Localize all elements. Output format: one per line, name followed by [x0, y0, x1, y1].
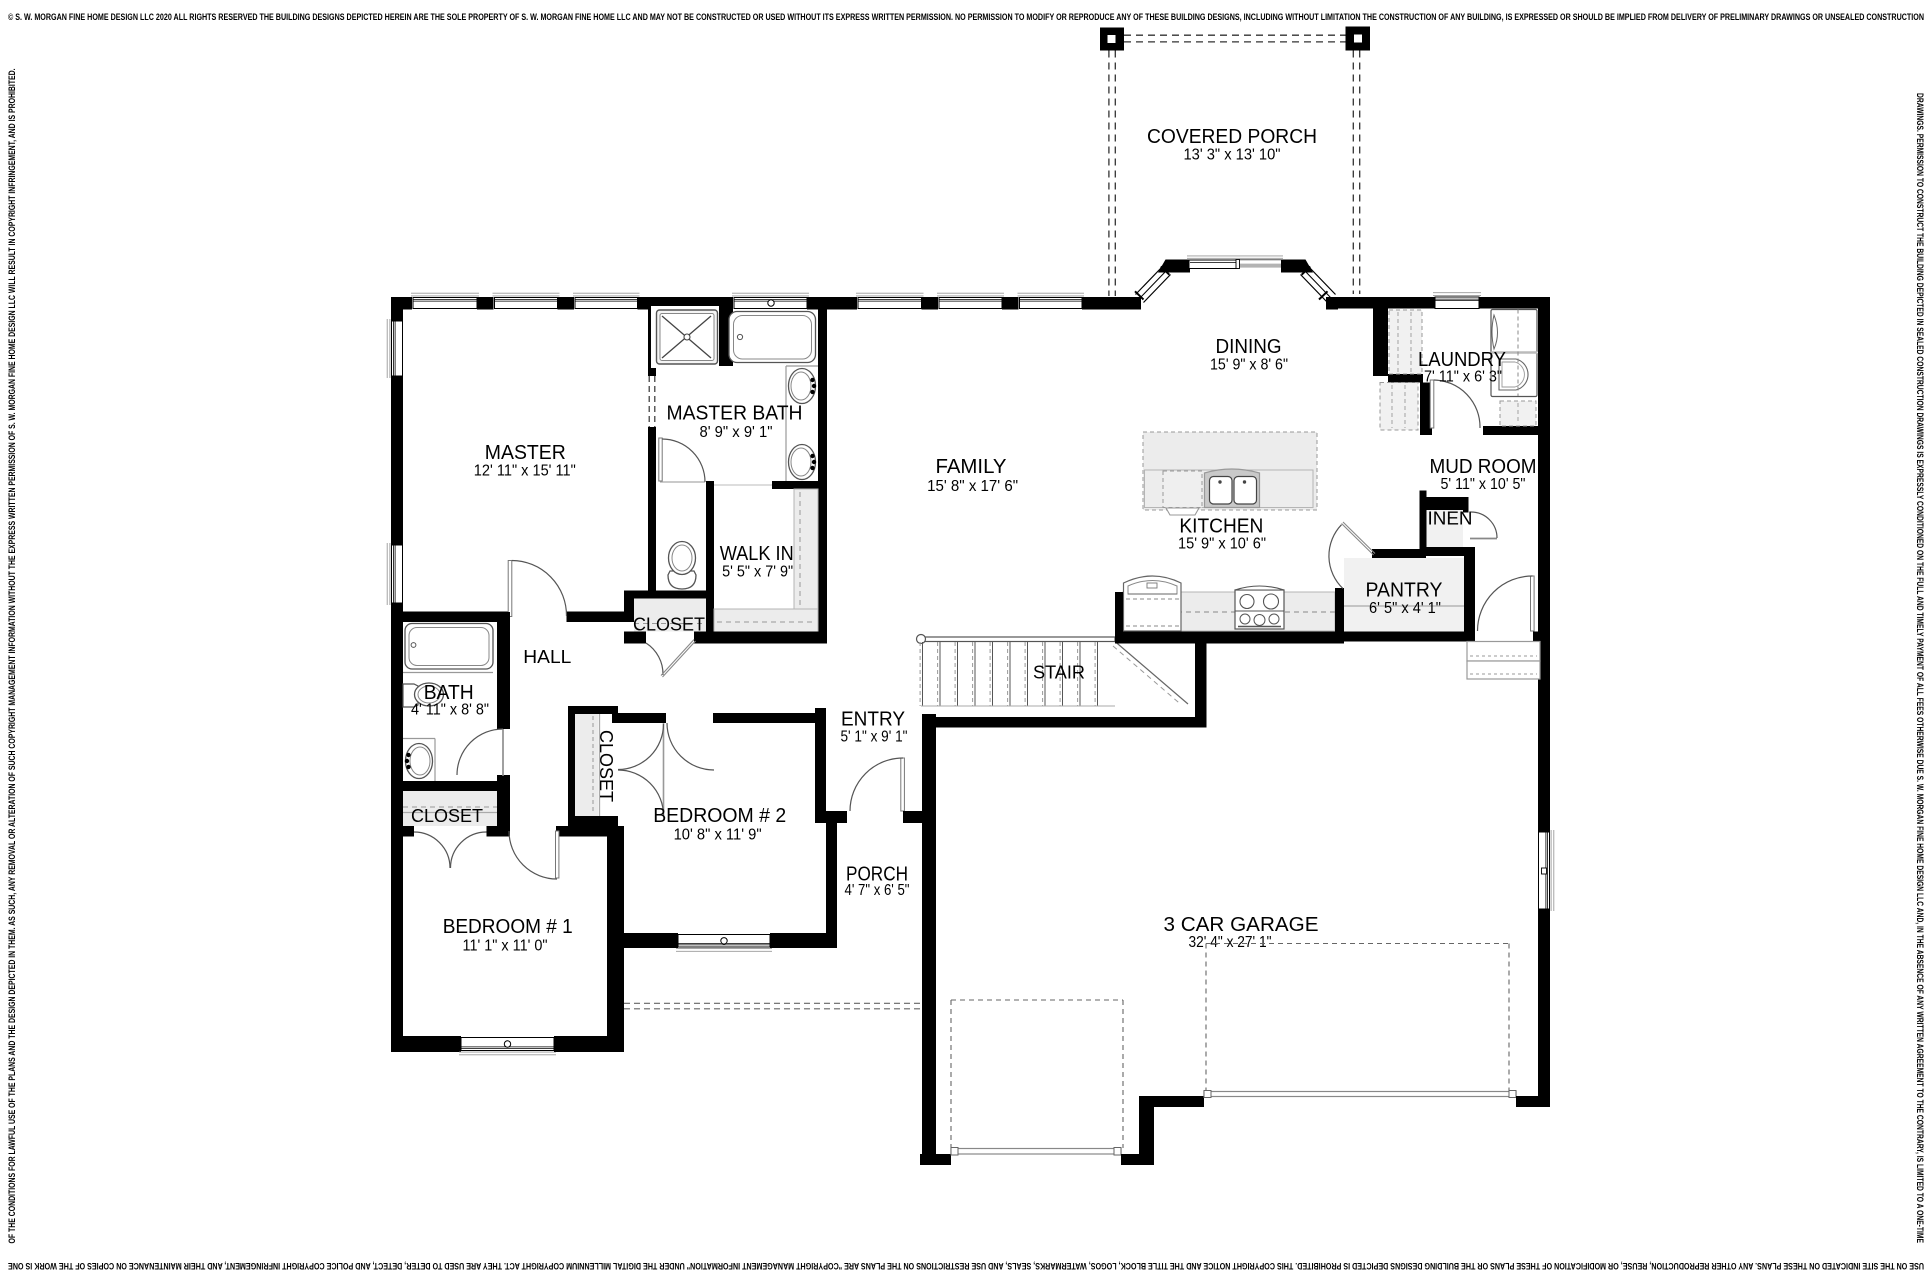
svg-text:5' 11" x 10' 5": 5' 11" x 10' 5" [1441, 476, 1526, 493]
svg-text:DINING: DINING [1216, 336, 1282, 358]
svg-text:6' 5" x 4' 1": 6' 5" x 4' 1" [1369, 600, 1441, 617]
svg-text:15' 9" x 10' 6": 15' 9" x 10' 6" [1178, 536, 1266, 553]
svg-text:4' 11" x 8' 8": 4' 11" x 8' 8" [411, 702, 489, 719]
svg-text:5' 5" x 7' 9": 5' 5" x 7' 9" [722, 564, 793, 581]
svg-text:© S. W. MORGAN FINE HOME DESIG: © S. W. MORGAN FINE HOME DESIGN LLC 2020… [8, 12, 1924, 22]
svg-text:8' 9" x 9' 1": 8' 9" x 9' 1" [700, 424, 773, 441]
svg-text:HALL: HALL [523, 647, 571, 667]
svg-text:5' 1" x 9' 1": 5' 1" x 9' 1" [841, 729, 908, 746]
svg-text:11' 1" x 11' 0": 11' 1" x 11' 0" [463, 938, 548, 955]
svg-text:DRAWINGS. PERMISSION TO CONST: DRAWINGS. PERMISSION TO CONSTRUCT THE BU… [1915, 93, 1925, 1243]
svg-text:MASTER BATH: MASTER BATH [667, 403, 803, 425]
svg-text:OF THE CONDITIONS FOR LAWFUL U: OF THE CONDITIONS FOR LAWFUL USE OF THE … [7, 69, 17, 1244]
svg-text:10' 8" x 11' 9": 10' 8" x 11' 9" [674, 827, 762, 844]
svg-text:15' 8" x 17' 6": 15' 8" x 17' 6" [927, 478, 1018, 495]
svg-text:7' 11" x 6' 3": 7' 11" x 6' 3" [1424, 369, 1502, 386]
svg-text:12' 11" x 15' 11": 12' 11" x 15' 11" [474, 463, 576, 480]
svg-text:MUD ROOM: MUD ROOM [1430, 456, 1537, 478]
svg-text:PANTRY: PANTRY [1366, 580, 1443, 602]
svg-text:MASTER: MASTER [485, 442, 566, 464]
svg-text:BEDROOM # 2: BEDROOM # 2 [653, 805, 786, 827]
svg-text:FAMILY: FAMILY [936, 456, 1007, 478]
svg-text:ENTRY: ENTRY [841, 709, 905, 731]
svg-text:BEDROOM # 1: BEDROOM # 1 [443, 916, 573, 938]
svg-text:32' 4" x 27' 1": 32' 4" x 27' 1" [1189, 934, 1272, 951]
svg-text:COVERED PORCH: COVERED PORCH [1147, 126, 1317, 148]
svg-text:USE ON THE SITE INDICATED ON T: USE ON THE SITE INDICATED ON THESE PLANS… [8, 1261, 1924, 1271]
svg-text:KITCHEN: KITCHEN [1179, 515, 1263, 537]
svg-text:CLOSET: CLOSET [596, 730, 616, 802]
svg-text:WALK IN: WALK IN [720, 543, 794, 565]
svg-text:STAIR: STAIR [1033, 662, 1085, 682]
svg-text:4' 7" x 6' 5": 4' 7" x 6' 5" [845, 882, 910, 899]
svg-text:13' 3" x 13' 10": 13' 3" x 13' 10" [1184, 147, 1281, 164]
svg-text:3 CAR GARAGE: 3 CAR GARAGE [1164, 914, 1319, 936]
svg-text:INEN: INEN [1428, 509, 1473, 529]
svg-text:CLOSET: CLOSET [411, 806, 483, 826]
svg-text:15' 9" x 8' 6": 15' 9" x 8' 6" [1210, 357, 1288, 374]
